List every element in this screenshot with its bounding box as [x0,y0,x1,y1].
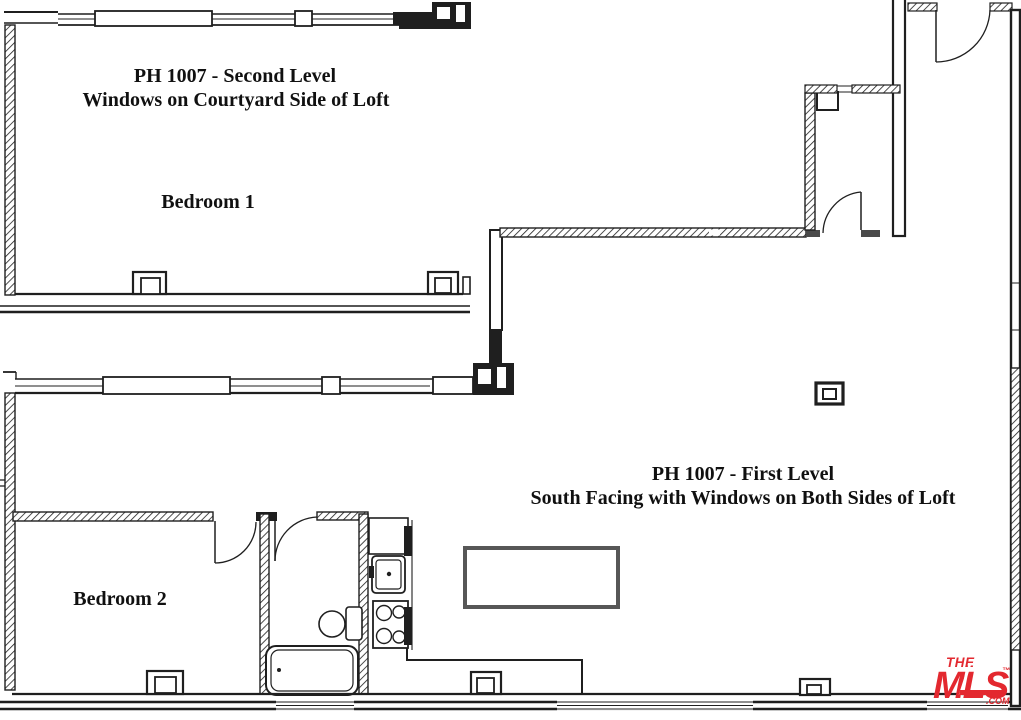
bathroom-east-wall-hatched [359,514,368,694]
column-core [155,677,176,693]
closet-west-wall-hatched [805,93,815,230]
pier-column-cutout [497,367,506,388]
courtyard-window-wall [4,2,471,29]
column-core [477,678,494,693]
second-level-plan: PH 1007 - Second Level Windows on Courty… [0,2,471,312]
door-threshold [806,230,820,237]
window [433,377,473,394]
door-swing [936,10,990,62]
refrigerator [369,518,408,554]
entry-hall [805,0,1012,237]
wall-joint-tick [0,480,5,486]
window-mullion [322,377,340,394]
floor-plan: PH 1007 - Second Level Windows on Courty… [0,0,1021,720]
mls-logo-com: .COM [986,696,1010,706]
window-mullion [295,11,312,26]
east-wall-hatched [1011,368,1020,650]
kitchen-island [465,548,618,607]
north-wall-stub-hatched [990,3,1012,11]
bedroom1-label: Bedroom 1 [161,191,255,213]
junction-wall [473,228,806,395]
toilet-tank [346,607,362,640]
wall-break [709,230,720,236]
second-level-subtitle: Windows on Courtyard Side of Loft [83,89,390,111]
bedroom2-label: Bedroom 2 [73,588,167,610]
toilet-bowl [319,611,345,637]
first-level-window-wall-north [3,372,473,394]
first-level-subtitle: South Facing with Windows on Both Sides … [531,487,956,509]
stove-burner [377,606,392,621]
door-threshold [861,230,880,237]
stove-burner [393,631,405,643]
bathroom [260,514,368,695]
sink-drain [387,572,391,576]
door-swing [823,192,861,233]
pier-column-cutout [478,369,491,384]
wall-notch [817,92,838,110]
first-level-title: PH 1007 - First Level [652,463,835,485]
mls-logo-underline [959,690,1004,695]
column-core [435,278,451,293]
door-swing [275,517,317,561]
column-core [823,389,836,399]
bedroom2-partition [13,512,368,563]
window [95,11,212,26]
first-level-north-wall-hatched [500,228,806,237]
stair-wall-solid [489,330,502,364]
sink-faucet [369,566,374,578]
stove-handle [404,607,412,645]
north-wall-stub-hatched [908,3,937,11]
west-wall-hatched [5,25,15,295]
refrigerator-handle [404,526,412,556]
window [103,377,230,394]
first-level-west-wall [0,393,15,690]
closet-north-wall-hatched [852,85,900,93]
south-wall [0,671,1021,710]
partition-wall [893,0,905,236]
floor-plan-drawing: PH 1007 - Second Level Windows on Courty… [0,0,1021,720]
wall-end-cap [463,277,470,294]
east-wall [1011,10,1020,706]
mls-logo-trademark: ™ [1002,666,1010,675]
mls-logo: THE MLS ™ .COM [933,655,1010,707]
door-swing [215,522,256,563]
west-wall-hatched [5,393,15,690]
closet-north-wall-hatched [805,85,837,93]
bathtub-drain [277,668,281,672]
bedroom2-north-wall-hatched [13,512,213,521]
mezzanine-edge [0,272,470,312]
column-core [141,278,160,294]
second-level-title: PH 1007 - Second Level [134,65,337,87]
stove-burner [393,606,405,618]
corner-column-cutout [456,5,465,22]
corner-column-cutout [437,7,450,19]
column-core [807,685,821,694]
window [837,86,852,92]
stair-wall [490,230,502,330]
stove-burner [377,629,392,644]
